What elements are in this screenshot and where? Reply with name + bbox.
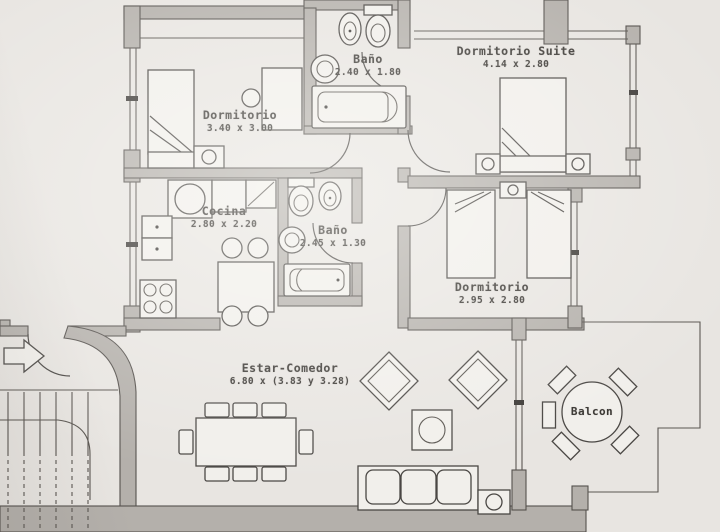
single-bed-icon xyxy=(148,70,194,168)
nightstand-icon xyxy=(500,182,526,198)
corner-cabinet-icon xyxy=(246,180,276,208)
stool-icon xyxy=(242,89,260,107)
balcony xyxy=(543,322,701,492)
kitchen-furniture xyxy=(140,180,276,326)
armchair-icon xyxy=(449,351,507,409)
floorplan-drawing xyxy=(0,0,720,532)
dining-table-icon xyxy=(179,403,313,481)
room-name: Dormitorio Suite xyxy=(457,45,576,58)
entry-arrow-icon xyxy=(4,340,44,372)
room-name: Balcon xyxy=(571,406,613,419)
room-label-balcon: Balcon xyxy=(571,406,613,419)
bidet-icon xyxy=(339,13,361,45)
double-bed-icon xyxy=(500,78,566,172)
bathtub-icon xyxy=(312,86,406,128)
room-name: Dormitorio xyxy=(455,281,529,294)
room-dims: 2.45 x 1.30 xyxy=(300,239,366,250)
bathtub-icon xyxy=(284,264,350,296)
floorplan-page: Dormitorio 3.40 x 3.00 Baño 2.40 x 1.80 … xyxy=(0,0,720,532)
room-label-dormitorio-3: Dormitorio 2.95 x 2.80 xyxy=(455,281,529,307)
armchair-icon xyxy=(360,352,418,410)
nightstand-icon xyxy=(194,146,224,168)
kitchen-table-icon xyxy=(218,238,274,326)
room-name: Baño xyxy=(335,53,401,66)
nightstand-icon xyxy=(566,154,590,174)
room-label-bano-1: Baño 2.40 x 1.80 xyxy=(335,53,401,79)
bidet-icon xyxy=(319,182,341,210)
coffee-table-icon xyxy=(412,410,452,450)
room-name: Dormitorio xyxy=(203,109,277,122)
room-dims: 2.95 x 2.80 xyxy=(455,296,529,307)
twin-bed-icon xyxy=(527,190,571,278)
stove-icon xyxy=(140,280,176,318)
sofa-icon xyxy=(358,466,478,510)
wall-unit-icon xyxy=(142,216,172,260)
room-label-cocina: Cocina 2.80 x 2.20 xyxy=(191,205,257,231)
room-label-dormitorio-1: Dormitorio 3.40 x 3.00 xyxy=(203,109,277,135)
room-label-bano-2: Baño 2.45 x 1.30 xyxy=(300,224,366,250)
room-dims: 3.40 x 3.00 xyxy=(203,124,277,135)
room-label-dormitorio-suite: Dormitorio Suite 4.14 x 2.80 xyxy=(457,45,576,71)
room-dims: 2.80 x 2.20 xyxy=(191,220,257,231)
room-name: Baño xyxy=(300,224,366,237)
room-dims: 4.14 x 2.80 xyxy=(457,60,576,71)
room-dims: 2.40 x 1.80 xyxy=(335,68,401,79)
room-dims: 6.80 x (3.83 y 3.28) xyxy=(230,377,350,388)
stairwell xyxy=(0,340,118,530)
nightstand-icon xyxy=(476,154,500,174)
bedroom3-furniture xyxy=(447,182,571,278)
toilet-icon xyxy=(288,178,314,216)
side-table-icon xyxy=(478,490,510,514)
twin-bed-icon xyxy=(447,190,495,278)
room-name: Cocina xyxy=(191,205,257,218)
room-label-estar-comedor: Estar-Comedor 6.80 x (3.83 y 3.28) xyxy=(230,362,350,388)
suite-furniture xyxy=(476,78,590,174)
room-name: Estar-Comedor xyxy=(230,362,350,375)
toilet-icon xyxy=(364,5,392,47)
